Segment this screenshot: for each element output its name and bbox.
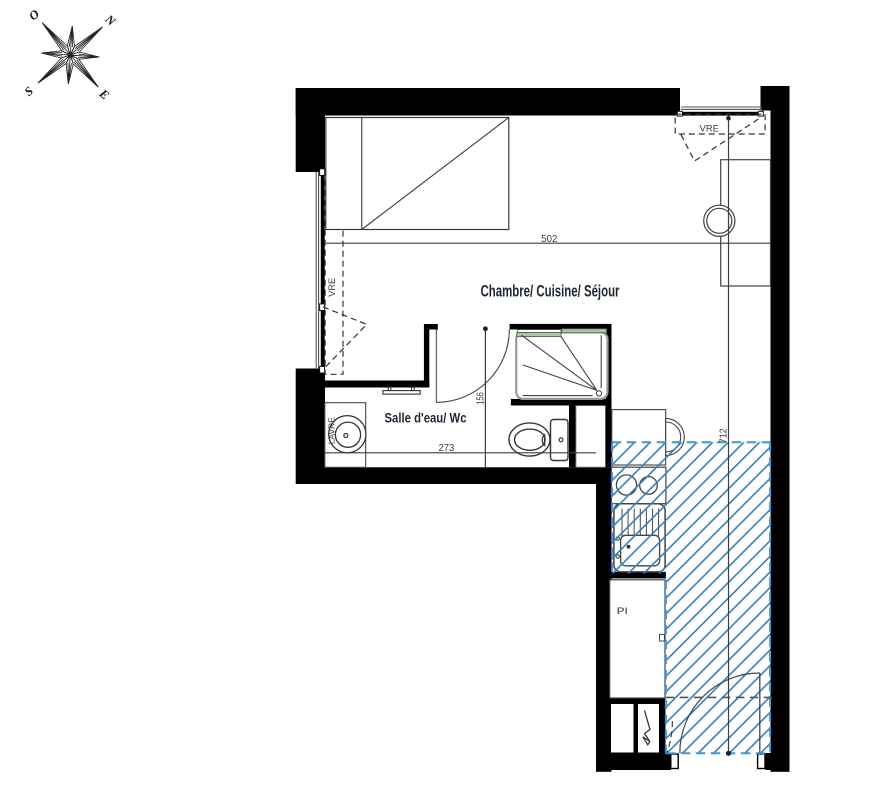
svg-text:502: 502 — [541, 234, 557, 245]
svg-text:712: 712 — [718, 428, 729, 443]
svg-text:Chambre/ Cuisine/ Séjour: Chambre/ Cuisine/ Séjour — [481, 282, 620, 300]
svg-text:Salle d'eau/ Wc: Salle d'eau/ Wc — [385, 410, 467, 425]
svg-text:LAVRE: LAVRE — [326, 417, 336, 444]
svg-text:273: 273 — [439, 443, 455, 454]
svg-text:156: 156 — [475, 392, 486, 405]
svg-text:PI: PI — [617, 606, 628, 617]
svg-text:VRE: VRE — [700, 123, 720, 134]
svg-text:VRE: VRE — [327, 278, 338, 297]
